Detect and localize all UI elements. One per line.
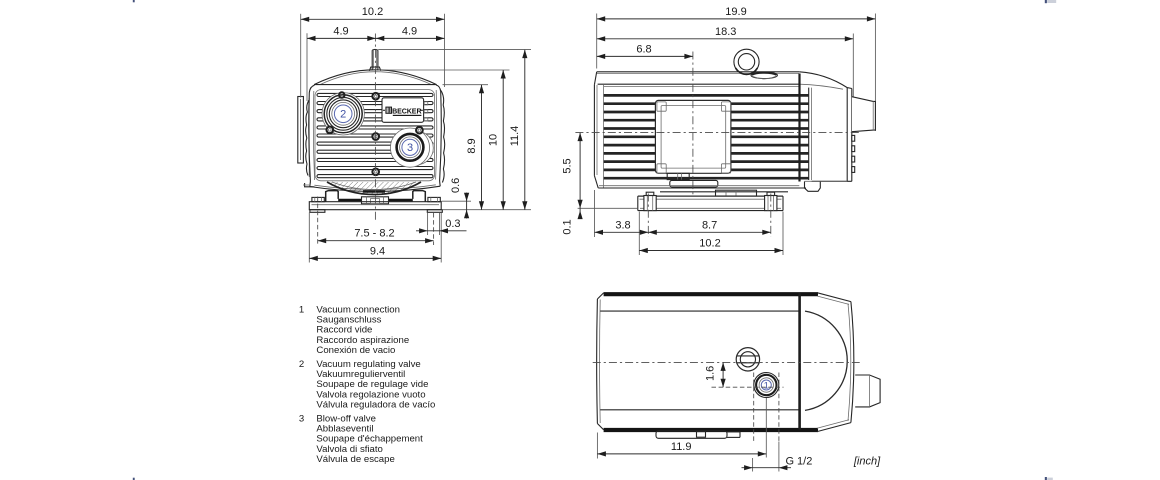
svg-text:4.9: 4.9	[333, 25, 348, 37]
svg-text:7.5 - 8.2: 7.5 - 8.2	[354, 228, 394, 240]
svg-text:Conexión de vacio: Conexión de vacio	[316, 345, 395, 356]
svg-text:3: 3	[407, 142, 413, 154]
svg-text:8.7: 8.7	[702, 219, 717, 231]
svg-text:Válvula reguladora de vacío: Válvula reguladora de vacío	[316, 400, 435, 411]
svg-text:0.3: 0.3	[445, 218, 460, 230]
svg-text:11.9: 11.9	[671, 441, 692, 453]
svg-text:3: 3	[299, 413, 304, 424]
svg-text:1.6: 1.6	[704, 366, 716, 381]
svg-text:10.2: 10.2	[699, 238, 720, 250]
svg-text:2: 2	[340, 109, 346, 121]
svg-text:1: 1	[764, 380, 769, 390]
svg-text:[inch]: [inch]	[853, 456, 881, 468]
svg-text:G 1/2: G 1/2	[785, 455, 812, 467]
svg-text:8.9: 8.9	[466, 138, 478, 153]
svg-text:BECKER: BECKER	[392, 108, 421, 116]
svg-text:9.4: 9.4	[370, 245, 385, 257]
svg-text:10: 10	[488, 134, 500, 146]
svg-text:10.2: 10.2	[362, 6, 383, 18]
svg-text:Válvula de escape: Válvula de escape	[316, 454, 394, 465]
svg-text:0.6: 0.6	[450, 178, 462, 193]
svg-text:2: 2	[299, 359, 304, 370]
svg-text:6.8: 6.8	[636, 43, 651, 55]
svg-text:5.5: 5.5	[561, 158, 573, 173]
svg-text:19.9: 19.9	[725, 6, 746, 18]
svg-text:11.4: 11.4	[509, 126, 521, 147]
svg-text:3.8: 3.8	[615, 219, 630, 231]
svg-text:0.1: 0.1	[561, 219, 573, 234]
svg-text:1: 1	[299, 304, 304, 315]
svg-text:18.3: 18.3	[715, 26, 736, 38]
svg-text:4.9: 4.9	[402, 25, 417, 37]
